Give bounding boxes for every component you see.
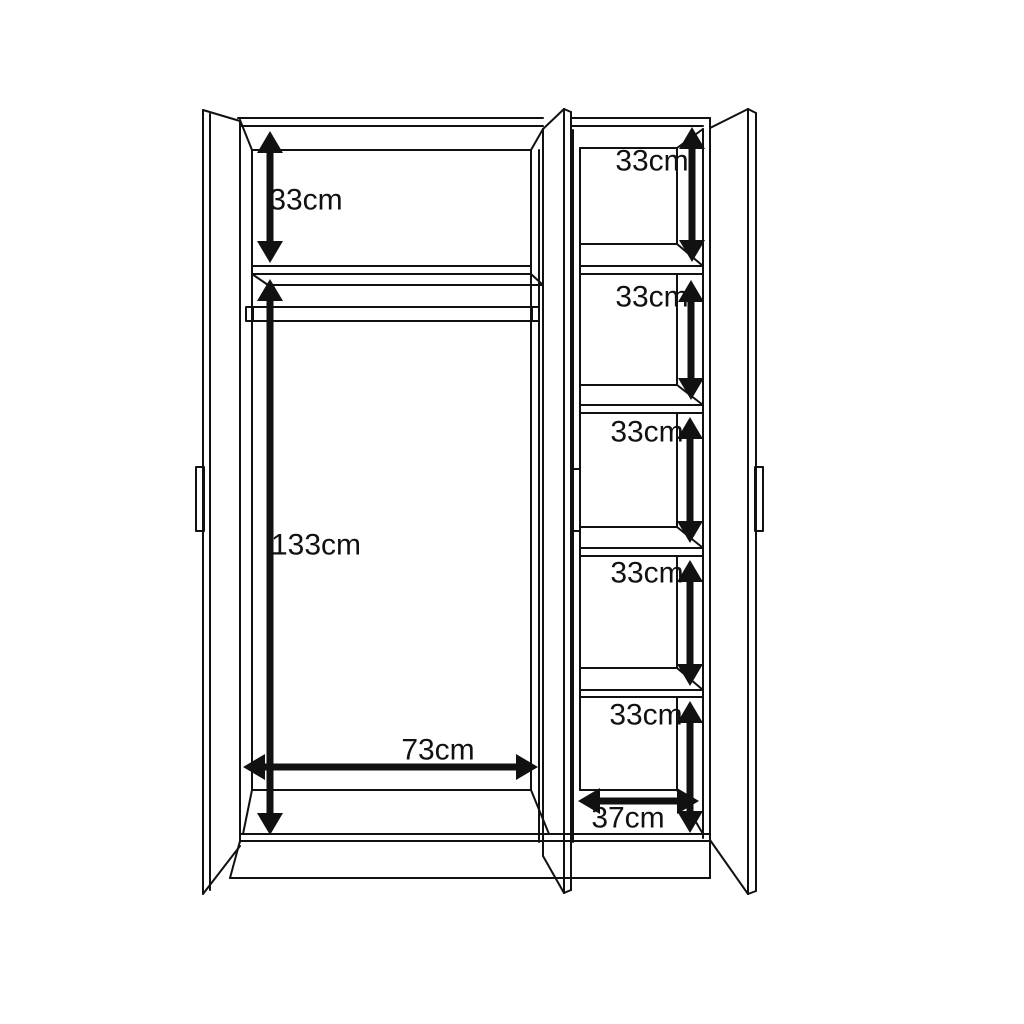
diagram-background	[0, 0, 1024, 1024]
wardrobe-dimension-diagram: 33cm133cm73cm37cm33cm33cm33cm33cm33cm	[0, 0, 1024, 1024]
dimension-label: 33cm	[610, 557, 683, 590]
dimension-label: 33cm	[615, 145, 688, 178]
dimension-label: 133cm	[271, 529, 361, 562]
dimension-label: 33cm	[609, 699, 682, 732]
dimension-label: 33cm	[610, 416, 683, 449]
dimension-label: 33cm	[269, 184, 342, 217]
dimension-label: 33cm	[615, 281, 688, 314]
dimension-label: 37cm	[591, 802, 664, 835]
dimension-label: 73cm	[401, 734, 474, 767]
wardrobe-line-drawing: 33cm133cm73cm37cm33cm33cm33cm33cm33cm	[0, 0, 1024, 1024]
